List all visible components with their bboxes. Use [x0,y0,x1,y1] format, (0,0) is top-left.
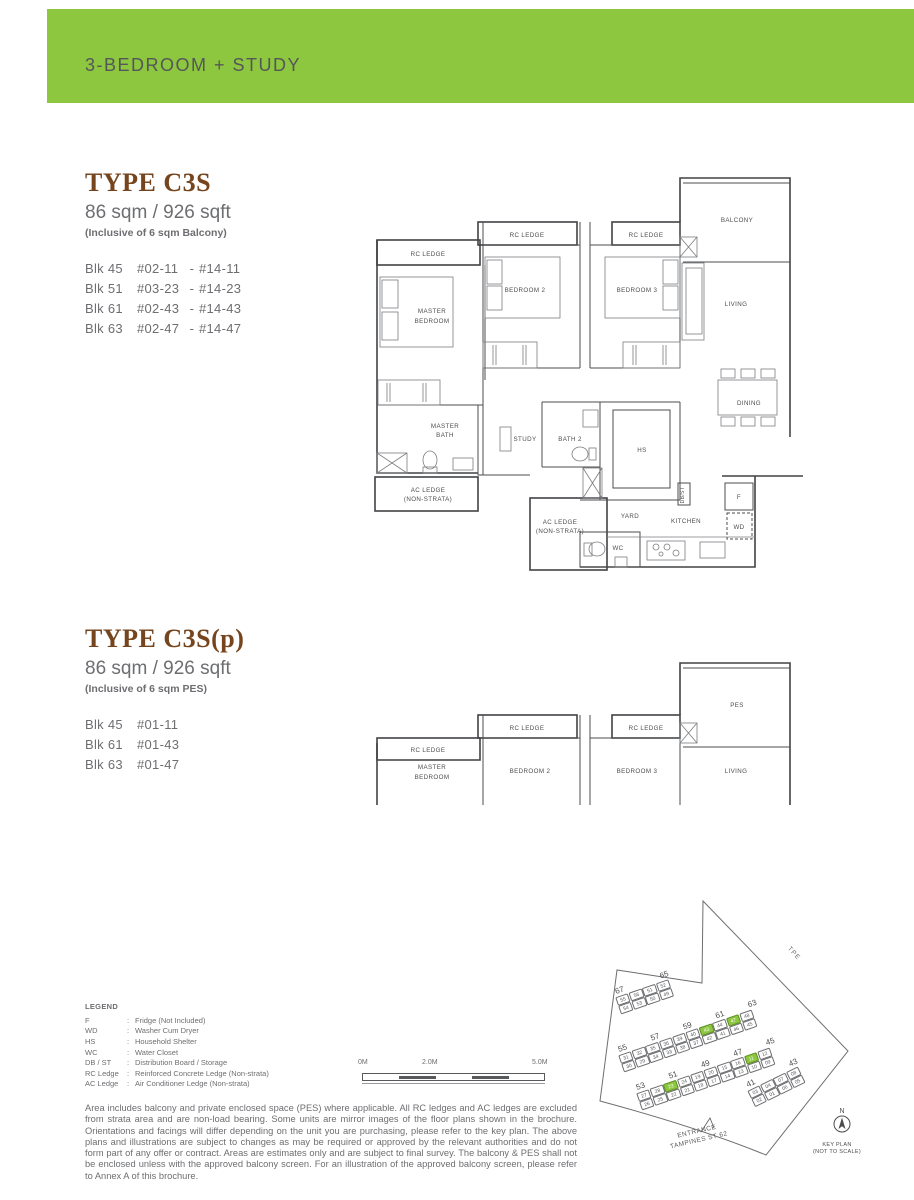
svg-text:BEDROOM: BEDROOM [415,318,450,325]
type-c3s-note: (Inclusive of 6 sqm Balcony) [85,227,251,239]
legend-row: RC Ledge : Reinforced Concrete Ledge (No… [85,1068,269,1079]
legend-desc: Household Shelter [135,1037,197,1046]
plan1-master-bath-label: MASTER [431,423,459,430]
north-label: N [833,1108,851,1115]
plan1-kitchen-label: KITCHEN [671,518,701,525]
scale-5m-label: 5.0M [532,1059,548,1066]
plan2-master-bedroom-label: MASTER [418,764,446,771]
type-c3s-info: TYPE C3S 86 sqm / 926 sqft (Inclusive of… [85,168,251,338]
scale-bar-rule [362,1073,545,1081]
unit-from: #01-43 [137,737,185,752]
unit-dash: - [185,261,199,276]
legend-items: F : Fridge (Not Included) WD : Washer Cu… [85,1015,269,1089]
unit-from: #02-43 [137,301,185,316]
plan1-bath2-label: BATH 2 [558,436,582,443]
type-c3sp-area: 86 sqm / 926 sqft [85,658,244,680]
scale-bar: 0M 2.0M 5.0M [356,1059,546,1085]
key-plan-boundary [590,888,914,1180]
type-c3sp-info: TYPE C3S(p) 86 sqm / 926 sqft (Inclusive… [85,624,244,774]
type-c3sp-note: (Inclusive of 6 sqm PES) [85,683,244,695]
legend-abbr: HS [85,1037,127,1046]
legend-separator: : [127,1026,135,1035]
unit-from: #01-47 [137,757,185,772]
plan1-rc-ledge-right-label: RC LEDGE [629,232,664,239]
unit-from: #02-47 [137,321,185,336]
unit-block: Blk 63 [85,321,137,336]
unit-row: Blk 61 #02-43 - #14-43 [85,298,251,318]
type-c3sp-unit-list: Blk 45 #01-11 Blk 61 #01-43 Blk 63 #01-4… [85,714,244,774]
scale-segment [472,1076,509,1080]
plan1-wd-label: WD [733,524,744,531]
legend-desc: Reinforced Concrete Ledge (Non-strata) [135,1069,269,1078]
unit-dash: - [185,281,199,296]
legend: LEGEND F : Fridge (Not Included) WD : Wa… [85,1002,269,1089]
scale-baseline [362,1083,545,1084]
scale-0m-label: 0M [358,1059,368,1066]
unit-to: #14-47 [199,321,251,336]
scale-segment [399,1076,436,1080]
type-c3s-title: TYPE C3S [85,168,251,198]
unit-dash: - [185,321,199,336]
plan1-yard-label: YARD [621,513,639,520]
plan2-bedroom2-label: BEDROOM 2 [510,768,551,775]
disclaimer-text: Area includes balcony and private enclos… [85,1103,577,1182]
legend-abbr: RC Ledge [85,1069,127,1078]
plan2-living-label: LIVING [725,768,748,775]
legend-desc: Water Closet [135,1048,178,1057]
unit-to: #14-43 [199,301,251,316]
legend-abbr: F [85,1016,127,1025]
legend-row: WD : Washer Cum Dryer [85,1026,269,1037]
unit-block: Blk 51 [85,281,137,296]
floorplan-c3sp: RC LEDGE RC LEDGE RC LEDGE PES MASTER BE… [365,655,820,805]
legend-separator: : [127,1058,135,1067]
plan1-wc-label: WC [612,545,623,552]
plan1-rc-ledge-mid-label: RC LEDGE [510,232,545,239]
legend-separator: : [127,1048,135,1057]
unit-block: Blk 45 [85,717,137,732]
plan1-hs-label: HS [637,447,646,454]
legend-row: F : Fridge (Not Included) [85,1015,269,1026]
plan1-bedroom2-label: BEDROOM 2 [505,287,546,294]
legend-desc: Distribution Board / Storage [135,1058,227,1067]
unit-row: Blk 63 #02-47 - #14-47 [85,318,251,338]
legend-separator: : [127,1016,135,1025]
legend-abbr: AC Ledge [85,1079,127,1088]
unit-row: Blk 63 #01-47 [85,754,244,774]
legend-title: LEGEND [85,1002,269,1011]
svg-text:(NON-STRATA): (NON-STRATA) [404,496,452,503]
unit-dash: - [185,301,199,316]
unit-row: Blk 45 #02-11 - #14-11 [85,258,251,278]
plan1-balcony-label: BALCONY [721,217,753,224]
keyplan-caption: KEY PLAN (NOT TO SCALE) [807,1142,867,1156]
key-plan: TPE 6765 55565152 54535049 5557596163 31… [590,888,914,1180]
type-c3s-area: 86 sqm / 926 sqft [85,202,251,224]
plan2-rc-ledge-right-label: RC LEDGE [629,725,664,732]
legend-desc: Washer Cum Dryer [135,1026,199,1035]
legend-desc: Air Conditioner Ledge (Non-strata) [135,1079,250,1088]
plan1-master-bedroom-label: MASTER [418,308,446,315]
unit-from: #02-11 [137,261,185,276]
plan1-fridge-label: F [737,494,741,501]
unit-block: Blk 63 [85,757,137,772]
plan1-ac-ledge-mid-label: AC LEDGE [543,519,578,526]
unit-block: Blk 45 [85,261,137,276]
legend-separator: : [127,1069,135,1078]
unit-row: Blk 45 #01-11 [85,714,244,734]
plan1-ac-ledge-left-label: AC LEDGE [411,487,446,494]
plan1-living-label: LIVING [725,301,748,308]
plan1-rc-ledge-left-label: RC LEDGE [411,251,446,258]
plan2-rc-ledge-left-label: RC LEDGE [411,747,446,754]
plan1-dining-label: DINING [737,400,761,407]
plan1-bedroom3-label: BEDROOM 3 [617,287,658,294]
type-c3s-unit-list: Blk 45 #02-11 - #14-11 Blk 51 #03-23 - #… [85,258,251,338]
north-compass: N [833,1108,851,1135]
legend-separator: : [127,1079,135,1088]
type-c3sp-title: TYPE C3S(p) [85,624,244,654]
legend-row: WC : Water Closet [85,1047,269,1058]
unit-from: #03-23 [137,281,185,296]
unit-to: #14-23 [199,281,251,296]
svg-text:BATH: BATH [436,432,454,439]
plan2-rc-ledge-mid-label: RC LEDGE [510,725,545,732]
legend-row: HS : Household Shelter [85,1036,269,1047]
svg-text:BEDROOM: BEDROOM [415,774,450,781]
brochure-page: 3-BEDROOM + STUDY TYPE C3S 86 sqm / 926 … [0,0,914,1200]
legend-separator: : [127,1037,135,1046]
svg-text:(NON-STRATA): (NON-STRATA) [536,528,584,535]
unit-block: Blk 61 [85,301,137,316]
unit-row: Blk 61 #01-43 [85,734,244,754]
floorplan-c3s: RC LEDGE RC LEDGE RC LEDGE MASTER BEDROO… [365,165,820,595]
unit-to: #14-11 [199,261,251,276]
legend-row: DB / ST : Distribution Board / Storage [85,1057,269,1068]
scale-2m-label: 2.0M [422,1059,438,1066]
plan1-study-label: STUDY [514,436,537,443]
unit-block: Blk 61 [85,737,137,752]
unit-from: #01-11 [137,717,185,732]
legend-abbr: DB / ST [85,1058,127,1067]
legend-abbr: WD [85,1026,127,1035]
legend-desc: Fridge (Not Included) [135,1016,205,1025]
legend-abbr: WC [85,1048,127,1057]
legend-row: AC Ledge : Air Conditioner Ledge (Non-st… [85,1079,269,1090]
section-title: 3-BEDROOM + STUDY [85,55,301,76]
unit-row: Blk 51 #03-23 - #14-23 [85,278,251,298]
plan1-dbst-label: DB/ST [680,487,686,504]
plan2-bedroom3-label: BEDROOM 3 [617,768,658,775]
plan2-pes-label: PES [730,702,744,709]
section-header-bar: 3-BEDROOM + STUDY [47,9,914,103]
compass-icon [833,1115,851,1133]
